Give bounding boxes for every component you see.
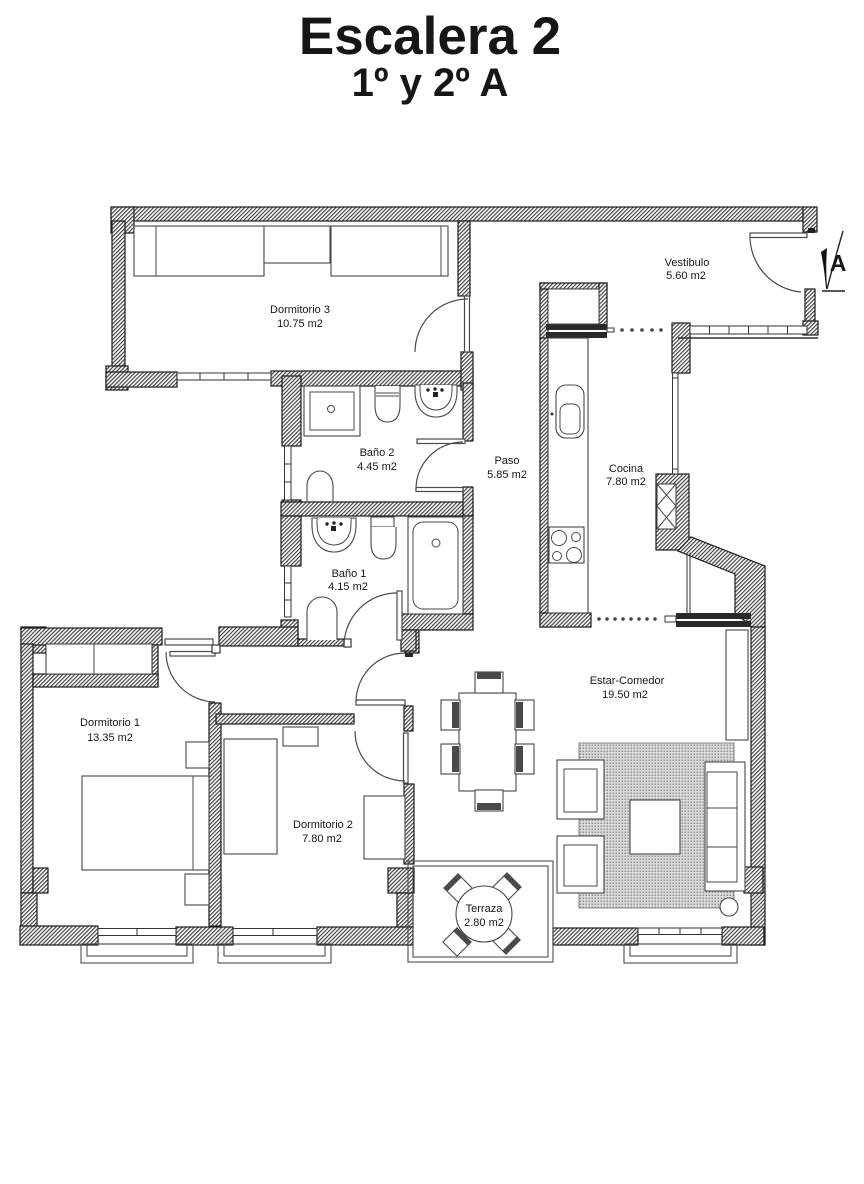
svg-text:A: A [830,250,847,276]
svg-text:19.50 m2: 19.50 m2 [602,689,648,701]
svg-text:Escalera 2: Escalera 2 [299,7,561,66]
svg-text:7.80 m2: 7.80 m2 [606,476,646,488]
svg-text:Baño 2: Baño 2 [360,447,395,459]
svg-text:1º y 2º A: 1º y 2º A [352,61,509,105]
svg-text:Dormitorio 3: Dormitorio 3 [270,304,330,316]
svg-text:Dormitorio 2: Dormitorio 2 [293,819,353,831]
svg-text:5.60 m2: 5.60 m2 [666,270,706,282]
svg-text:7.80 m2: 7.80 m2 [302,833,342,845]
svg-text:Vestibulo: Vestibulo [665,257,710,269]
svg-text:13.35 m2: 13.35 m2 [87,732,133,744]
svg-text:Baño 1: Baño 1 [332,568,367,580]
svg-text:10.75 m2: 10.75 m2 [277,318,323,330]
svg-text:4.15 m2: 4.15 m2 [328,581,368,593]
svg-text:2.80 m2: 2.80 m2 [464,917,504,929]
svg-text:5.85 m2: 5.85 m2 [487,469,527,481]
svg-text:Terraza: Terraza [466,903,504,915]
svg-text:4.45 m2: 4.45 m2 [357,461,397,473]
svg-text:Dormitorio 1: Dormitorio 1 [80,717,140,729]
svg-text:Paso: Paso [494,455,519,467]
svg-text:Estar-Comedor: Estar-Comedor [590,675,665,687]
svg-text:Cocina: Cocina [609,463,644,475]
